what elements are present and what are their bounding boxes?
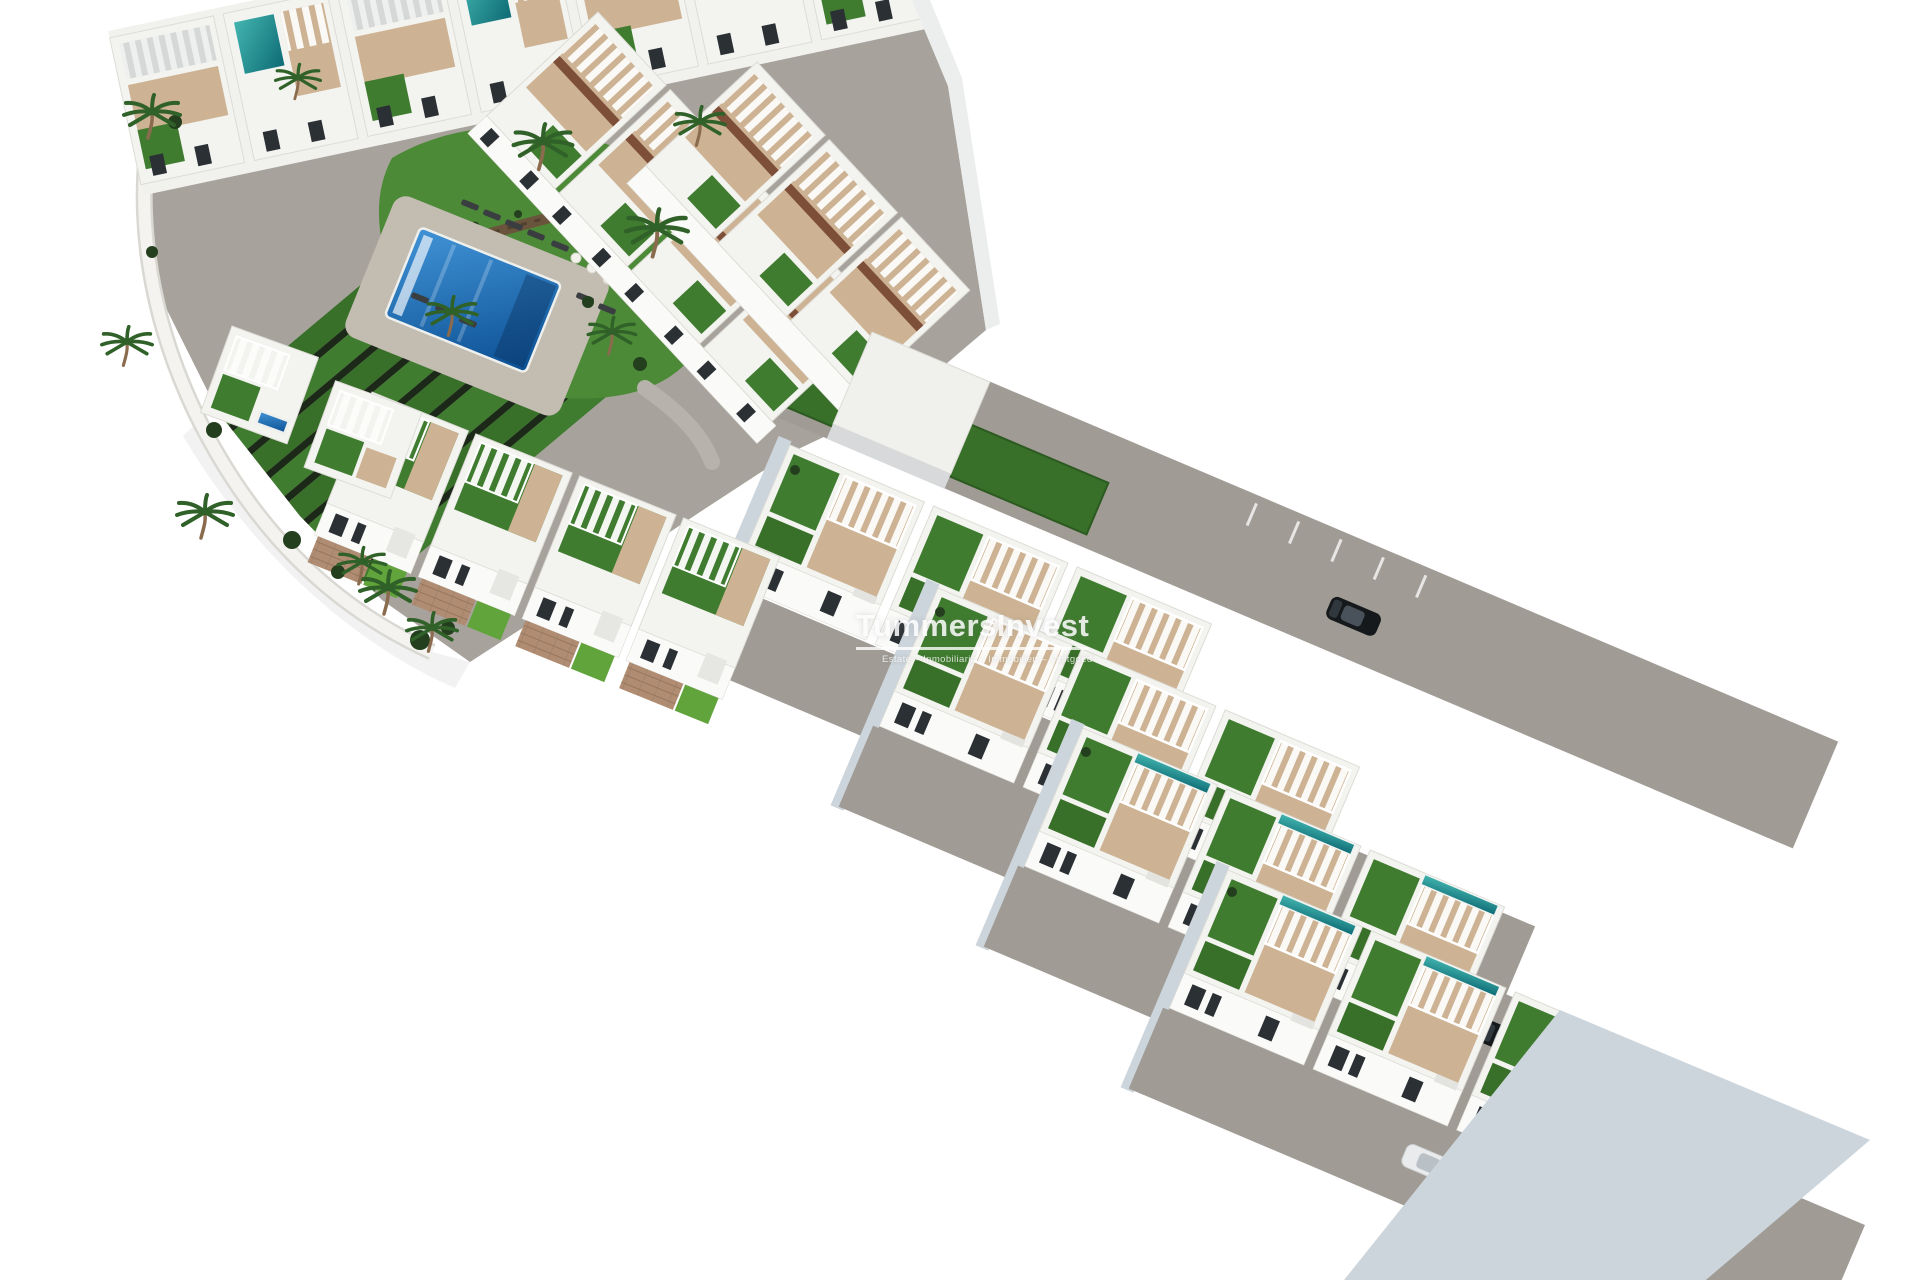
render-canvas: TummersInvest Estate – Inmobiliaria – Im…	[0, 0, 1920, 1280]
site-render	[0, 0, 1920, 1280]
